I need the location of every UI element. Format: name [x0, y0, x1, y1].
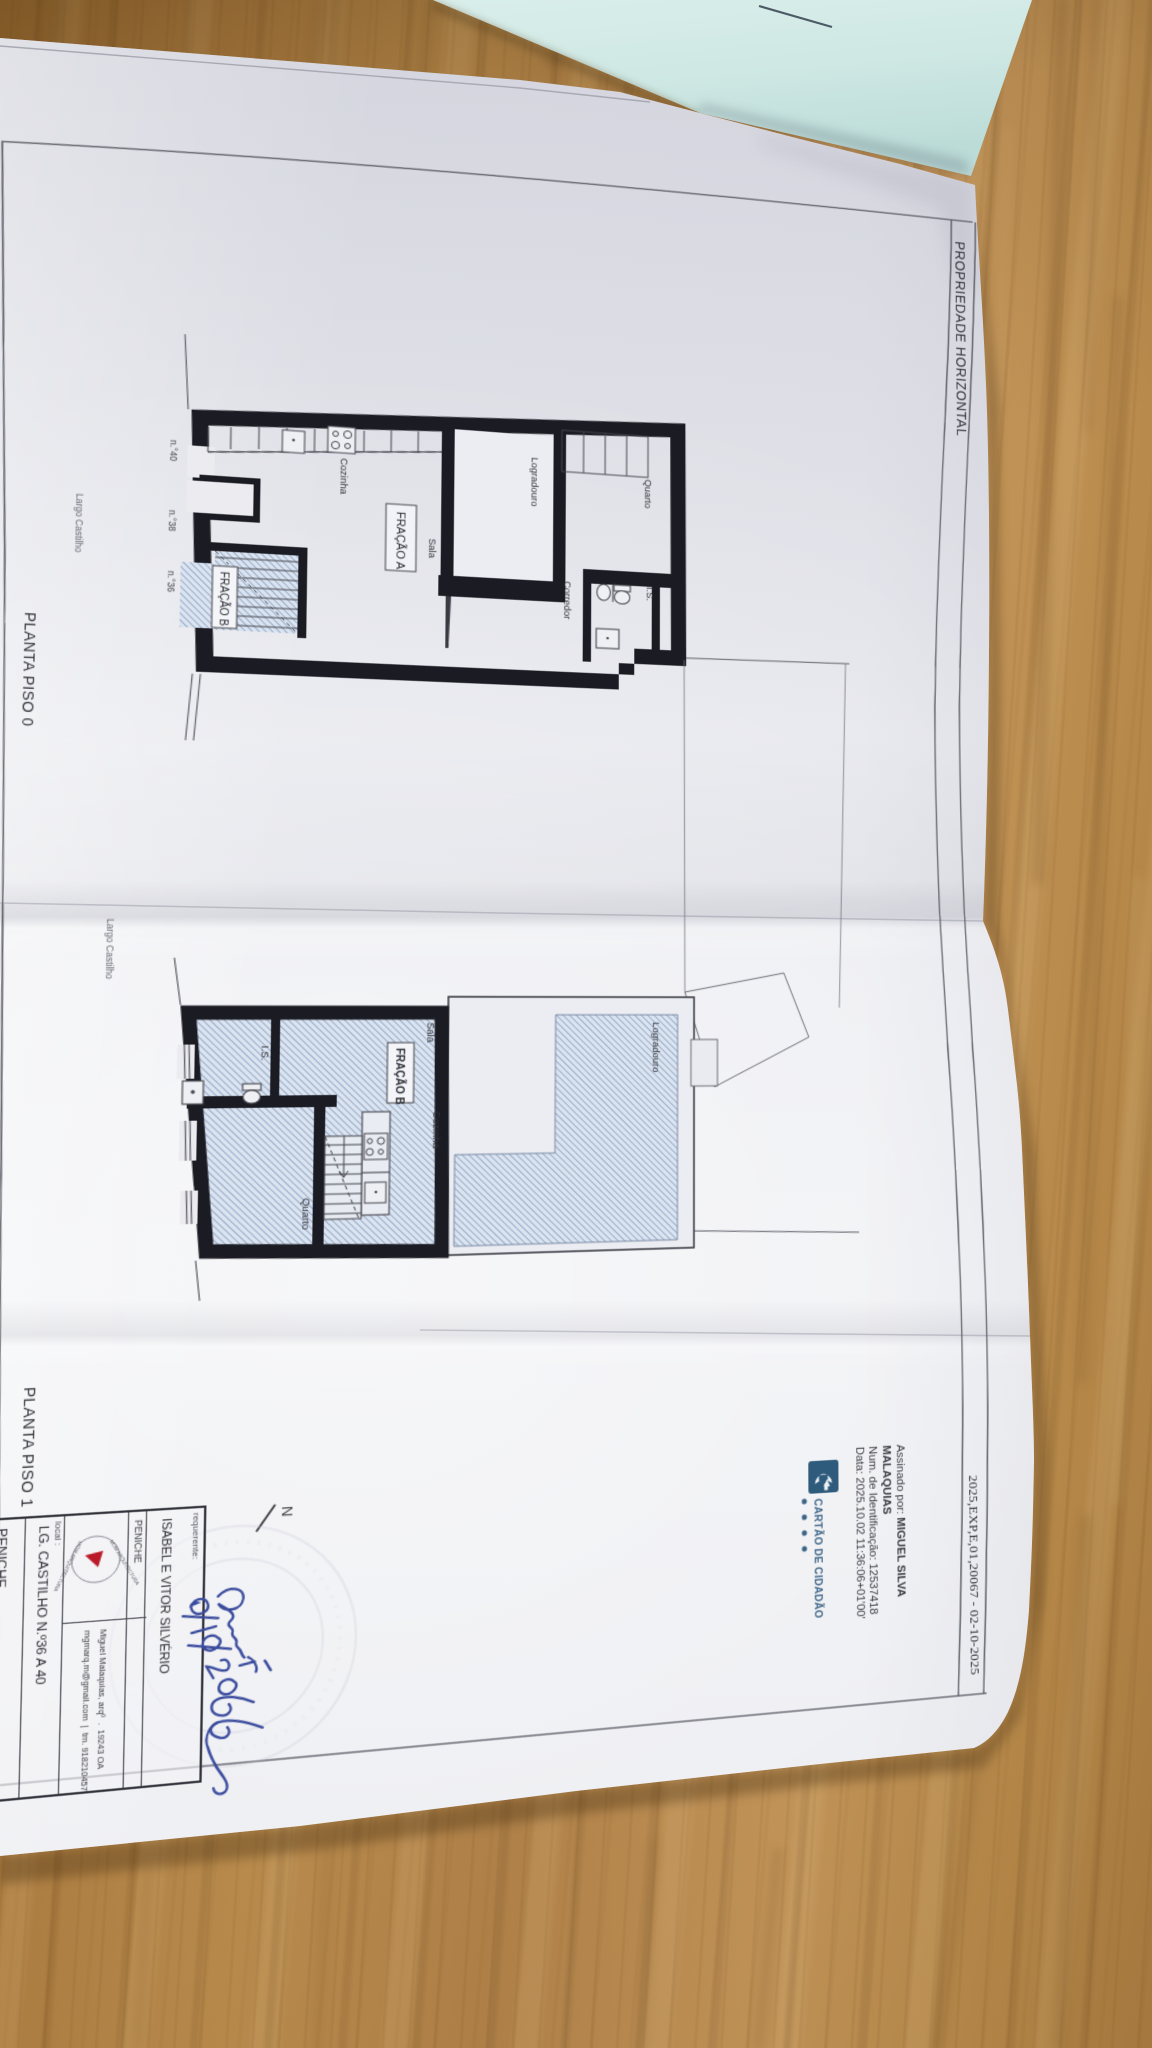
svg-text:n.°38: n.°38 — [166, 510, 178, 532]
svg-text:FRAÇÃO B: FRAÇÃO B — [216, 571, 230, 626]
svg-text:I.S.: I.S. — [645, 587, 656, 602]
svg-text:Cozinha: Cozinha — [431, 1111, 444, 1149]
svg-text:CARTÃO DE CIDADÃO: CARTÃO DE CIDADÃO — [811, 1498, 823, 1619]
svg-text:Logradouro: Logradouro — [529, 457, 541, 507]
svg-text:FRAÇÃO A: FRAÇÃO A — [393, 511, 408, 570]
svg-text:Sala: Sala — [425, 1022, 437, 1043]
svg-text:n.°40: n.°40 — [168, 440, 180, 462]
svg-text:n.°36: n.°36 — [165, 570, 177, 592]
svg-text:I.S.: I.S. — [259, 1045, 272, 1061]
svg-text:Cozinha: Cozinha — [338, 458, 351, 496]
svg-text:Quarto: Quarto — [300, 1198, 313, 1230]
svg-text:FRAÇÃO B: FRAÇÃO B — [392, 1048, 405, 1105]
svg-text:Corredor: Corredor — [562, 581, 574, 620]
svg-text:Sala: Sala — [427, 538, 439, 559]
svg-text:Logradouro: Logradouro — [651, 1022, 663, 1072]
svg-text:Quarto: Quarto — [643, 479, 654, 509]
